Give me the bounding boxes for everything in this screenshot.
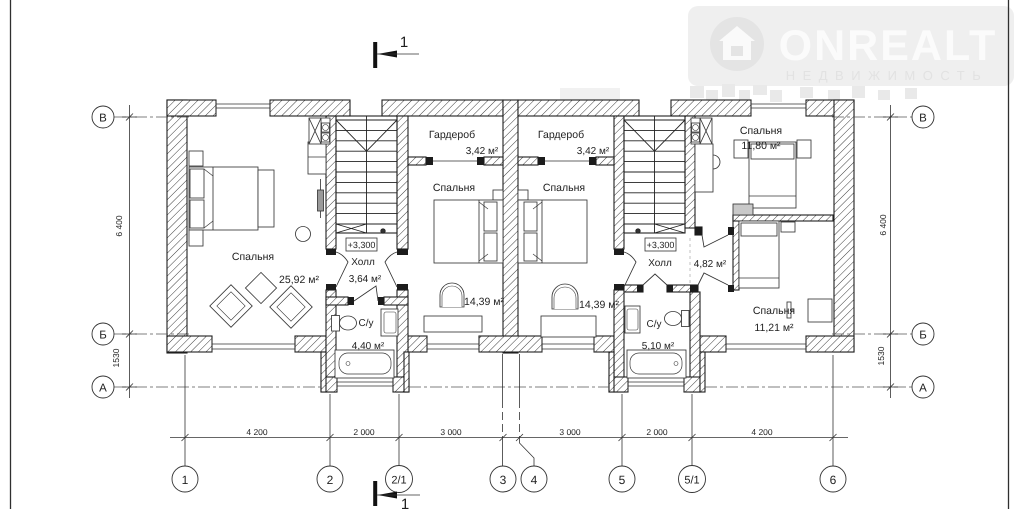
svg-text:4,82 м²: 4,82 м² [694, 259, 727, 270]
svg-text:Холл: Холл [648, 258, 672, 269]
svg-text:6 400: 6 400 [878, 214, 888, 236]
svg-text:1: 1 [400, 34, 408, 51]
svg-text:А: А [99, 383, 107, 395]
svg-text:4 200: 4 200 [246, 427, 268, 437]
svg-text:А: А [919, 383, 927, 395]
svg-text:2 000: 2 000 [353, 427, 375, 437]
svg-text:Спальня: Спальня [232, 251, 274, 263]
svg-text:4,40 м²: 4,40 м² [352, 341, 385, 352]
svg-text:2 000: 2 000 [646, 427, 668, 437]
svg-text:5,10 м²: 5,10 м² [642, 341, 675, 352]
svg-text:Холл: Холл [351, 257, 375, 268]
svg-text:С/у: С/у [359, 318, 374, 329]
svg-text:В: В [99, 113, 107, 125]
svg-text:6: 6 [830, 473, 837, 487]
svg-text:11,21 м²: 11,21 м² [754, 322, 794, 334]
svg-text:Б: Б [919, 330, 927, 342]
svg-text:+3,300: +3,300 [647, 240, 675, 250]
svg-text:3 000: 3 000 [559, 427, 581, 437]
svg-text:Гардероб: Гардероб [429, 129, 475, 141]
svg-text:1: 1 [401, 496, 409, 509]
svg-text:11,80 м²: 11,80 м² [741, 140, 781, 152]
svg-text:3: 3 [500, 473, 507, 487]
svg-text:25,92 м²: 25,92 м² [279, 274, 319, 286]
svg-text:Гардероб: Гардероб [538, 129, 584, 141]
svg-text:14,39 м²: 14,39 м² [464, 296, 504, 308]
svg-text:2/1: 2/1 [391, 475, 406, 487]
svg-text:5: 5 [619, 473, 626, 487]
svg-text:Спальня: Спальня [543, 182, 585, 194]
svg-text:+3,300: +3,300 [348, 240, 376, 250]
svg-text:2: 2 [327, 473, 334, 487]
svg-text:ONREALT: ONREALT [779, 22, 998, 70]
svg-text:1530: 1530 [876, 346, 886, 365]
svg-text:В: В [919, 113, 927, 125]
svg-text:Спальня: Спальня [433, 182, 475, 194]
svg-text:НЕДВИЖИМОСТЬ: НЕДВИЖИМОСТЬ [786, 68, 989, 83]
svg-text:3,42 м²: 3,42 м² [466, 146, 499, 157]
svg-text:5/1: 5/1 [684, 475, 699, 487]
svg-text:3,64 м²: 3,64 м² [349, 274, 382, 285]
svg-text:4 200: 4 200 [751, 427, 773, 437]
svg-text:Спальня: Спальня [740, 125, 782, 137]
svg-text:3,42 м²: 3,42 м² [577, 146, 610, 157]
svg-text:С/у: С/у [647, 319, 662, 330]
svg-text:Спальня: Спальня [753, 305, 795, 317]
svg-text:3 000: 3 000 [440, 427, 462, 437]
svg-text:1: 1 [182, 473, 189, 487]
svg-text:4: 4 [531, 473, 538, 487]
svg-text:1530: 1530 [111, 348, 121, 367]
svg-text:Б: Б [99, 330, 107, 342]
svg-text:14,39 м²: 14,39 м² [579, 299, 619, 311]
svg-text:6 400: 6 400 [114, 215, 124, 237]
